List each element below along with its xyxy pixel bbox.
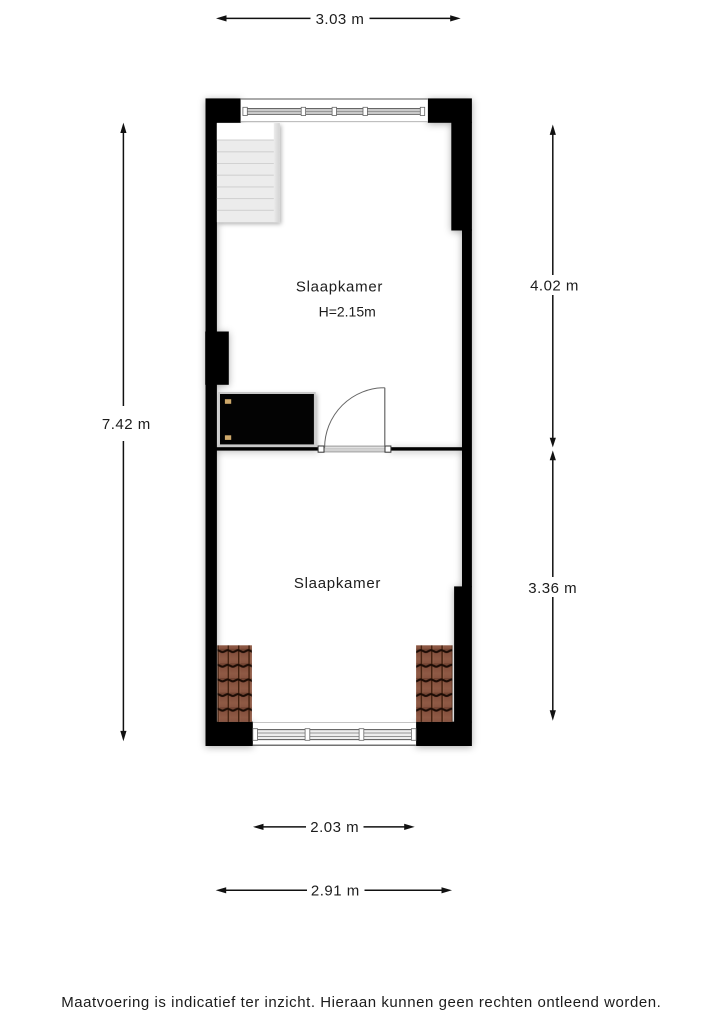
svg-text:Slaapkamer: Slaapkamer [296,278,383,295]
svg-text:H=2.15m: H=2.15m [319,303,376,319]
svg-text:2.03 m: 2.03 m [310,819,359,836]
svg-text:2.91 m: 2.91 m [311,883,360,900]
svg-text:7.42 m: 7.42 m [102,416,151,433]
svg-text:Maatvoering is indicatief ter: Maatvoering is indicatief ter inzicht. H… [61,994,661,1011]
svg-text:3.36 m: 3.36 m [528,580,577,597]
svg-text:Slaapkamer: Slaapkamer [294,575,381,592]
svg-text:3.03 m: 3.03 m [316,11,365,28]
svg-text:4.02 m: 4.02 m [530,278,579,295]
